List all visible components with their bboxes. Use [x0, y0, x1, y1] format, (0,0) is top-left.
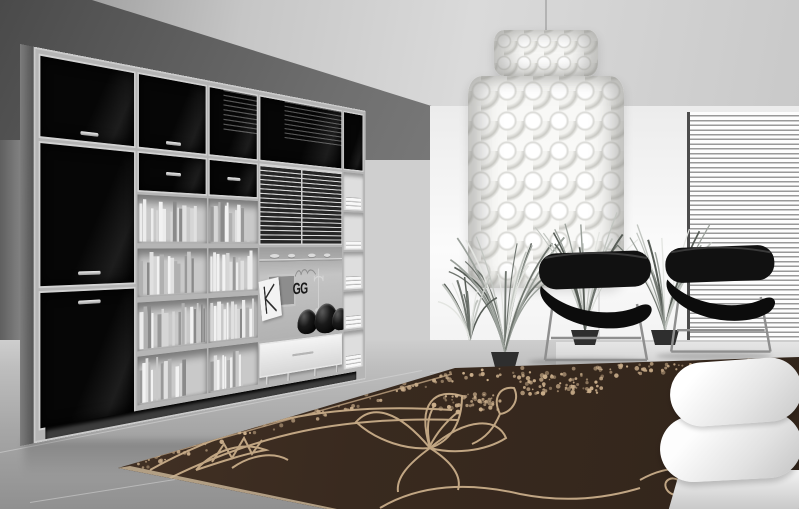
book-spine [151, 370, 153, 402]
black-lounge-chair [642, 240, 788, 360]
glass-cabinet-door [209, 158, 258, 198]
book-spine [182, 359, 186, 396]
book-spine [177, 264, 180, 294]
tall-black-door [39, 287, 136, 431]
linen-cubby [343, 212, 363, 250]
sideboard-foot [288, 373, 290, 381]
bookshelf-cell [209, 248, 258, 293]
tall-black-door [39, 141, 136, 288]
linen-cubby [343, 291, 363, 330]
folded-linen [346, 205, 361, 209]
book-spine [247, 213, 250, 241]
cabinet-handle [78, 271, 101, 275]
display-niche: GG [259, 247, 342, 341]
white-sofa-corner [630, 356, 799, 509]
linen-cubby [343, 172, 363, 211]
book-spine [250, 251, 253, 290]
cabinet-handle [227, 177, 240, 181]
linen-cubby [343, 329, 363, 369]
folded-linen [346, 323, 361, 328]
slatted-cabinet-doors [259, 163, 342, 245]
book-spine [227, 302, 229, 339]
blinds-reflection [285, 101, 341, 148]
sideboard-handle [292, 351, 313, 356]
book-spine [168, 358, 172, 398]
linen-cubby [343, 252, 363, 290]
glass-cabinet-door [343, 111, 363, 172]
blinds-reflection [223, 90, 256, 137]
bookshelf-cell [138, 194, 207, 243]
folded-linen [346, 241, 361, 244]
cabinet-divider [301, 169, 302, 243]
dish [324, 253, 330, 257]
book-spine [241, 261, 244, 290]
abstract-art-lines [259, 277, 282, 321]
glass-cabinet-door [138, 72, 207, 156]
sideboard-foot [314, 369, 316, 377]
book-spine [241, 208, 244, 242]
book-spine [229, 213, 233, 241]
book-spine [172, 312, 175, 346]
wall-unit-side-panel [20, 44, 34, 446]
bookshelf-cell [209, 295, 258, 343]
book-spine [241, 356, 243, 386]
chandelier-cord [545, 0, 547, 30]
cabinet-handle [80, 131, 98, 137]
book-spine [151, 208, 154, 241]
gg-logo-text: GG [293, 279, 308, 299]
book-spine [140, 261, 143, 296]
folded-linen [346, 284, 361, 288]
book-spine [151, 313, 153, 348]
dish [288, 254, 295, 258]
book-spine [216, 254, 219, 291]
book-spine [156, 357, 158, 400]
sideboard-foot [336, 365, 338, 372]
book-spine [197, 303, 199, 343]
book-spine [194, 205, 197, 241]
chandelier-top-tier [494, 30, 598, 76]
framed-art [259, 277, 282, 321]
bookshelf-cell [138, 298, 207, 351]
book-spine [164, 313, 168, 347]
dish [270, 254, 280, 258]
book-spine [191, 258, 194, 292]
dish [308, 254, 316, 258]
bookshelf-cell [209, 198, 258, 243]
bookshelf-cell [209, 342, 258, 393]
glass-cabinet-door [209, 85, 258, 161]
bookshelf-cell [138, 248, 207, 297]
book-spine [143, 199, 146, 241]
sofa-cushion [668, 355, 799, 428]
sideboard-foot [266, 377, 269, 385]
cabinet-handle [78, 299, 101, 304]
cabinet-handle [166, 172, 181, 177]
wall-unit-bookcase: GG [20, 44, 366, 446]
book-spine [163, 209, 166, 242]
folded-linen [346, 245, 361, 248]
cabinet-handle [166, 141, 181, 146]
book-spine [254, 302, 256, 336]
book-spine [217, 360, 219, 390]
book-spine [203, 308, 205, 342]
scene: GG [0, 0, 799, 509]
book-spine [185, 307, 187, 344]
glass-cabinet-door [138, 151, 207, 196]
